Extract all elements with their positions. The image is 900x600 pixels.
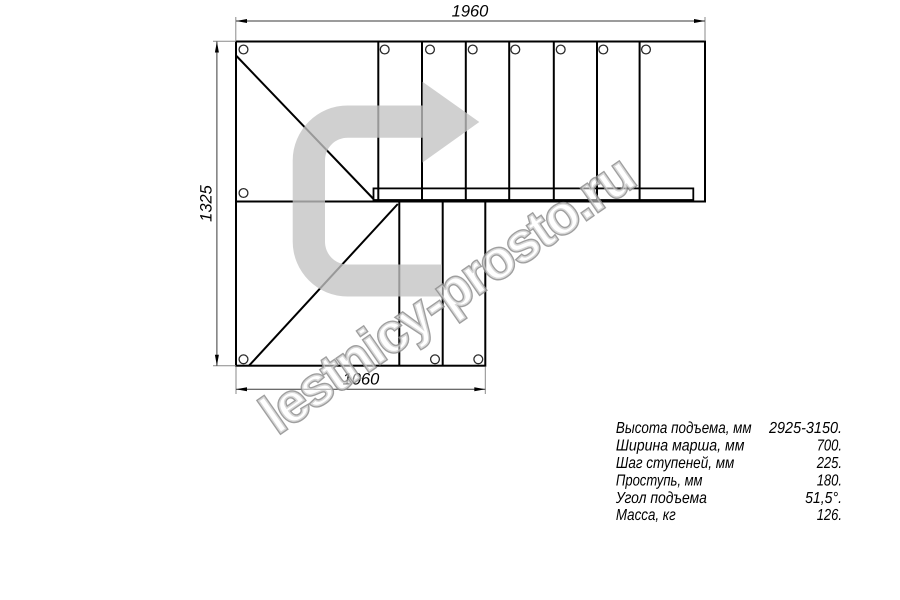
- svg-text:225.: 225.: [816, 455, 842, 472]
- svg-text:126.: 126.: [817, 507, 842, 524]
- svg-text:1960: 1960: [452, 3, 490, 21]
- svg-text:Шаг ступеней, мм: Шаг ступеней, мм: [616, 455, 734, 472]
- svg-text:51,5°.: 51,5°.: [805, 490, 842, 507]
- svg-text:700.: 700.: [817, 438, 842, 455]
- svg-text:Высота подъема, мм: Высота подъема, мм: [616, 420, 752, 437]
- svg-text:Масса, кг: Масса, кг: [616, 507, 676, 524]
- svg-text:2925-3150.: 2925-3150.: [768, 420, 842, 437]
- svg-text:180.: 180.: [817, 473, 842, 490]
- svg-text:Проступь, мм: Проступь, мм: [616, 473, 703, 490]
- svg-text:1325: 1325: [198, 184, 216, 222]
- svg-text:Угол подъема: Угол подъема: [615, 490, 707, 507]
- svg-text:Ширина марша, мм: Ширина марша, мм: [616, 438, 745, 455]
